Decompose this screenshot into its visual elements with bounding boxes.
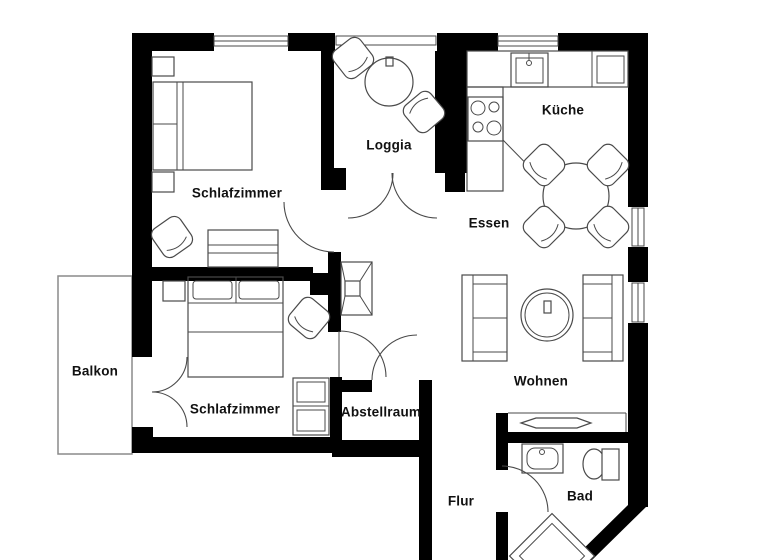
window-icon xyxy=(632,283,644,322)
double-bed-icon xyxy=(188,277,283,377)
radiator-icon xyxy=(508,413,626,432)
room-label-schlafzimmer-1: Schlafzimmer xyxy=(192,186,282,201)
dining-furniture xyxy=(520,141,632,251)
room-label-balkon: Balkon xyxy=(72,364,118,379)
room-label-kueche: Küche xyxy=(542,103,584,118)
floor-plan-drawing xyxy=(0,0,768,560)
shower-icon xyxy=(510,514,595,560)
door-swing-icon xyxy=(152,357,187,392)
sofa-icon xyxy=(462,275,507,361)
armchair-icon xyxy=(148,213,195,260)
window-icon xyxy=(214,36,288,46)
door-swing-icon xyxy=(348,173,393,218)
living-furniture xyxy=(462,275,623,361)
armchair-icon xyxy=(285,294,333,342)
sink-icon xyxy=(511,53,548,87)
coffee-table-icon xyxy=(521,289,573,341)
nightstand-icon xyxy=(152,172,174,192)
duct-icon xyxy=(341,262,372,315)
double-bed-icon xyxy=(153,82,252,170)
room-label-schlafzimmer-2: Schlafzimmer xyxy=(190,402,280,417)
door-swing-icon xyxy=(284,202,334,252)
door-swing-icon xyxy=(152,392,187,427)
room-label-bad: Bad xyxy=(567,489,593,504)
window-icon xyxy=(498,36,558,46)
room-label-essen: Essen xyxy=(469,216,510,231)
washbasin-icon xyxy=(522,444,563,473)
stove-icon xyxy=(468,97,503,141)
nightstand-icon xyxy=(163,281,185,301)
nightstand-icon xyxy=(152,57,174,76)
toilet-icon xyxy=(583,449,619,480)
room-label-loggia: Loggia xyxy=(366,138,411,153)
bedroom1-furniture xyxy=(148,57,278,267)
sofa-icon xyxy=(583,275,623,361)
room-label-flur: Flur xyxy=(448,494,474,509)
door-swing-icon xyxy=(339,331,386,377)
door-swing-icon xyxy=(372,335,417,380)
door-swing-icon xyxy=(392,173,437,218)
window-icon xyxy=(632,208,644,246)
loggia-furniture xyxy=(329,34,448,136)
room-label-wohnen: Wohnen xyxy=(514,374,568,389)
wardrobe-icon xyxy=(293,378,329,435)
floor-plan: Schlafzimmer Loggia Küche Essen Wohnen B… xyxy=(0,0,768,560)
room-label-abstellraum: Abstellraum xyxy=(341,405,421,420)
dresser-icon xyxy=(208,230,278,267)
